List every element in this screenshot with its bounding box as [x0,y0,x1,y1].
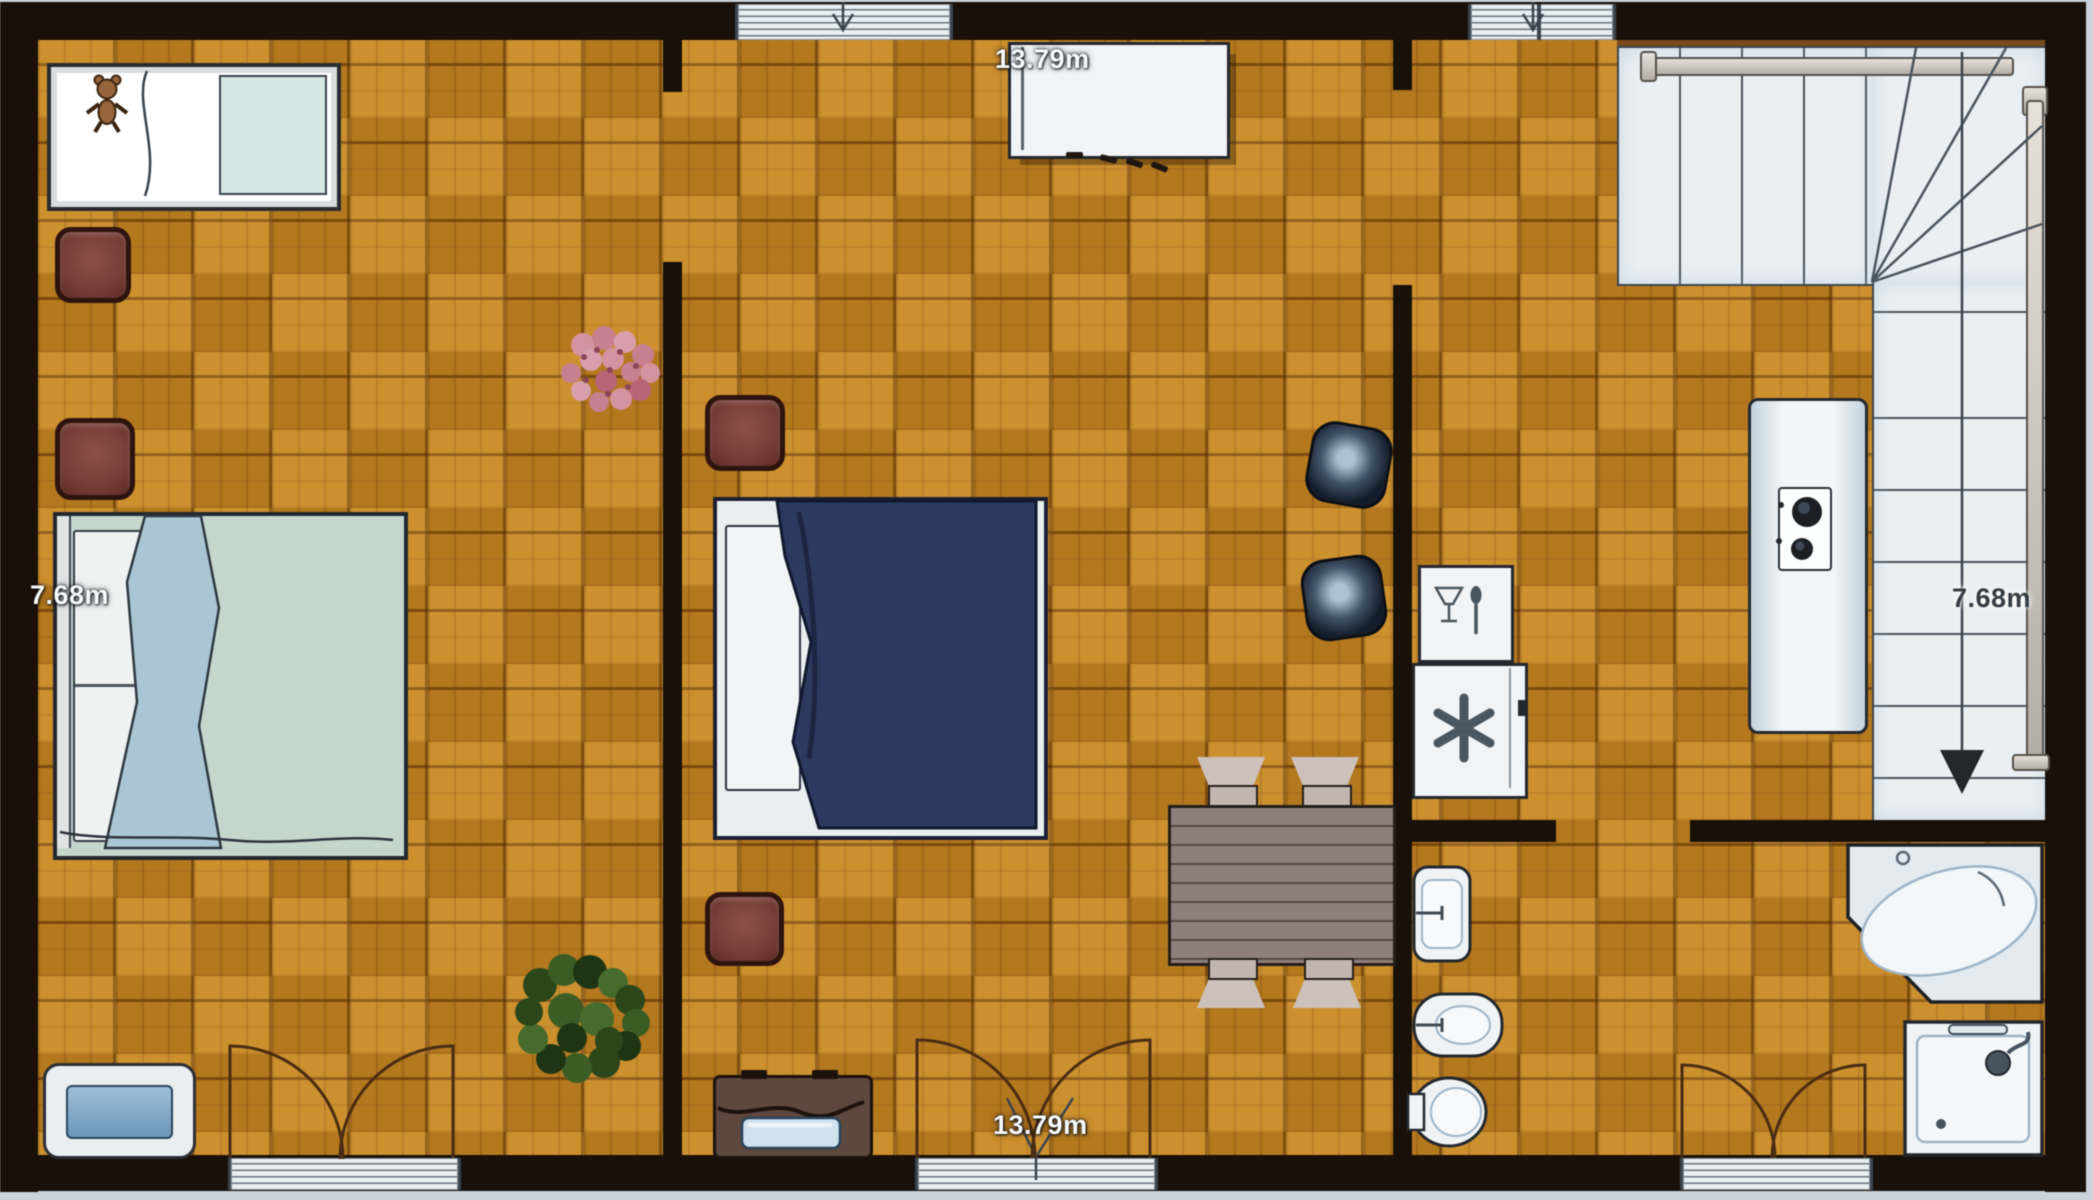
staircase-upper-flight[interactable] [1617,46,1874,286]
wall-top [0,2,2060,40]
dimension-label-top: 13.79m [995,46,1090,73]
bed-headboard [57,516,71,848]
dimension-label-left: 7.68m [30,582,109,609]
dining-chair-2[interactable] [1291,757,1359,807]
bed-pillow [725,525,801,791]
wall-bathroom-top [1690,820,2046,842]
double-bed-middle[interactable] [713,497,1048,840]
dining-table[interactable] [1168,805,1396,966]
kitchen-counter[interactable] [1748,398,1868,734]
wall-bedroom-divider [663,262,682,1155]
stair-handrail-right[interactable] [2026,100,2044,764]
door-threshold-bathroom[interactable] [1680,1158,1873,1190]
pet-bed-cushion [66,1085,173,1139]
window-top-right[interactable] [1468,4,1616,40]
sideboard-handle [1066,152,1083,158]
window-top-middle[interactable] [735,4,953,40]
lounge-chair-1[interactable] [1302,418,1397,513]
dishwasher[interactable] [1418,565,1514,663]
dimension-label-right: 7.68m [1952,585,2031,612]
dining-chair-3[interactable] [1197,958,1265,1008]
lounge-chair-2[interactable] [1298,552,1391,645]
stair-handrail-endcap [1640,51,1657,82]
staircase-right-flight[interactable] [1872,282,2049,820]
staircase-winder-corner[interactable] [1872,46,2047,284]
dining-chair-4[interactable] [1293,958,1361,1008]
suitcase[interactable] [713,1075,873,1159]
wall-right [2045,2,2086,1192]
wall-kitchen-divider [1393,285,1412,1155]
wall-wc-stub [1410,820,1556,842]
single-bed[interactable] [47,63,341,211]
stair-handrail-endcap-bottom [2012,754,2050,771]
single-bed-blanket [219,75,327,195]
door-threshold-middle[interactable] [915,1158,1158,1190]
floor-plan-canvas[interactable]: 13.79m 13.79m 7.68m 7.68m [0,0,2093,1200]
stair-top-trim [1617,40,2045,46]
window-mullion [1537,4,1541,40]
dimension-label-bottom: 13.79m [993,1112,1088,1139]
stool-nightstand-4[interactable] [705,892,784,966]
stool-nightstand-1[interactable] [55,227,131,303]
wall-bedroom-divider-stub [663,38,682,92]
stool-nightstand-3[interactable] [705,395,785,471]
bed-pillows [73,530,153,842]
stair-handrail-top[interactable] [1650,57,2014,76]
pet-bed[interactable] [43,1063,196,1159]
stool-nightstand-2[interactable] [55,418,135,500]
dining-chair-1[interactable] [1197,757,1265,807]
cooktop[interactable] [1778,487,1832,571]
freezer[interactable] [1412,663,1528,799]
door-threshold-left[interactable] [228,1158,461,1190]
double-bed-left[interactable] [53,512,408,860]
wall-kitchen-divider-stub [1393,38,1412,90]
